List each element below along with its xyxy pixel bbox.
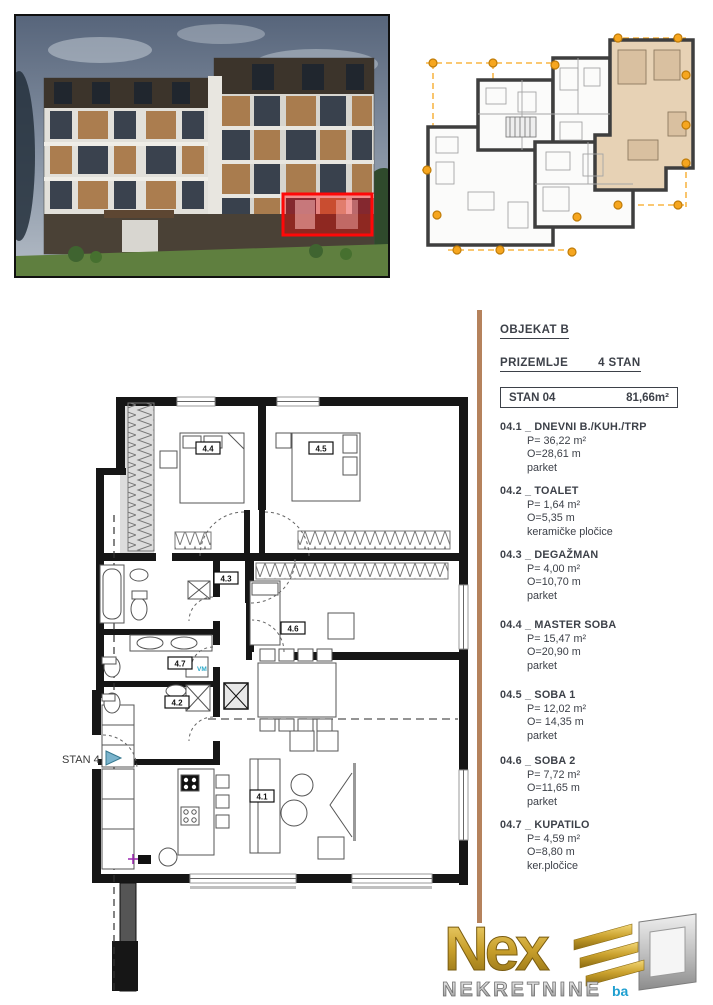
room-spec-item: 04.1 _ DNEVNI B./KUH./TRP P= 36,22 m² O=… (500, 421, 700, 475)
room-label-4.3: 4.3 (214, 572, 238, 584)
room-perimeter: O=20,90 m (527, 646, 700, 660)
site-plan-drawing (418, 22, 710, 264)
room-title: 04.4 _ MASTER SOBA (500, 619, 700, 633)
room-title: 04.2 _ TOALET (500, 485, 700, 499)
apartment-highlight-box (283, 194, 372, 235)
entrance-door (122, 220, 158, 252)
agency-logo: Nex NEKRETNINE ba (434, 912, 713, 1000)
room-title: 04.3 _ DEGAŽMAN (500, 549, 700, 563)
room-title: 04.1 _ DNEVNI B./KUH./TRP (500, 421, 700, 435)
room-area: P= 12,02 m² (527, 703, 700, 717)
floor-units-count: 4 STAN (598, 357, 640, 369)
svg-text:4.1: 4.1 (256, 793, 268, 802)
svg-text:4.6: 4.6 (287, 625, 299, 634)
room-label-4.2: 4.2 (165, 696, 189, 708)
room-floor-finish: parket (527, 660, 700, 674)
room-perimeter: O=10,70 m (527, 576, 700, 590)
cloud (48, 37, 152, 63)
bush (68, 246, 84, 262)
room-floor-finish: ker.pločice (527, 860, 700, 874)
unit-details-panel: OBJEKAT B PRIZEMLJE 4 STAN STAN 04 81,66… (500, 320, 700, 883)
shaft-box (224, 683, 248, 709)
unit-name-label: STAN 4 (62, 754, 100, 766)
logo-brand-text: Nex (444, 915, 550, 984)
room-floor-finish: parket (527, 590, 700, 604)
room-label-4.6: 4.6 (281, 622, 305, 634)
svg-text:4.2: 4.2 (171, 699, 183, 708)
room-perimeter: O=28,61 m (527, 448, 700, 462)
room-floor-finish: parket (527, 730, 700, 744)
floor-plan-drawing: VM 4.4 4.5 4.3 4.6 4.7 4.2 4.1 STAN 4 (40, 385, 470, 1000)
svg-text:4.4: 4.4 (202, 445, 214, 454)
room-floor-finish: parket (527, 796, 700, 810)
room-label-4.4: 4.4 (196, 442, 220, 454)
room-perimeter: O=8,80 m (527, 846, 700, 860)
entrance-canopy (104, 210, 174, 218)
svg-text:4.3: 4.3 (220, 575, 232, 584)
unit-summary-box: STAN 04 81,66m² (500, 387, 678, 408)
washing-machine-label: VM (197, 666, 207, 673)
room-spec-item: 04.2 _ TOALET P= 1,64 m² O=5,35 m kerami… (500, 485, 700, 539)
room-spec-item: 04.3 _ DEGAŽMAN P= 4,00 m² O=10,70 m par… (500, 549, 700, 603)
room-label-4.1: 4.1 (250, 790, 274, 802)
room-title: 04.6 _ SOBA 2 (500, 755, 700, 769)
room-area: P= 4,00 m² (527, 563, 700, 577)
room-title: 04.7 _ KUPATILO (500, 819, 700, 833)
room-spec-item: 04.5 _ SOBA 1 P= 12,02 m² O= 14,35 m par… (500, 689, 700, 743)
room-perimeter: O= 14,35 m (527, 716, 700, 730)
room-perimeter: O=11,65 m (527, 782, 700, 796)
room-spec-item: 04.4 _ MASTER SOBA P= 15,47 m² O=20,90 m… (500, 619, 700, 673)
floor-row: PRIZEMLJE 4 STAN (500, 357, 641, 372)
svg-text:4.5: 4.5 (315, 445, 327, 454)
room-label-4.7: 4.7 (168, 657, 192, 669)
logo-domain-text: ba (612, 983, 629, 999)
bush (90, 251, 102, 263)
listing-sheet: { "details_panel": { "building_title": "… (0, 0, 713, 1000)
room-spec-item: 04.7 _ KUPATILO P= 4,59 m² O=8,80 m ker.… (500, 819, 700, 873)
bush (340, 248, 352, 260)
unit-number: STAN 04 (509, 392, 555, 404)
room-area: P= 36,22 m² (527, 435, 700, 449)
building-title: OBJEKAT B (500, 324, 569, 339)
apartment-floor-plan: VM 4.4 4.5 4.3 4.6 4.7 4.2 4.1 STAN 4 (40, 385, 470, 1000)
site-plan (418, 22, 710, 264)
room-area: P= 7,72 m² (527, 769, 700, 783)
room-floor-finish: keramičke pločice (527, 526, 700, 540)
vertical-divider (477, 310, 482, 923)
unit-total-area: 81,66m² (626, 392, 669, 404)
building-render-image (16, 16, 388, 276)
room-perimeter: O=5,35 m (527, 512, 700, 526)
cloud (177, 24, 265, 44)
floor-label: PRIZEMLJE (500, 357, 568, 369)
room-spec-item: 04.6 _ SOBA 2 P= 7,72 m² O=11,65 m parke… (500, 755, 700, 809)
stair-hatch (506, 117, 536, 137)
bush (309, 244, 323, 258)
room-area: P= 15,47 m² (527, 633, 700, 647)
wall-cap (112, 941, 138, 991)
room-area: P= 4,59 m² (527, 833, 700, 847)
room-floor-finish: parket (527, 462, 700, 476)
logo-subtitle-text: NEKRETNINE (442, 979, 602, 1000)
building-render (14, 14, 390, 278)
room-area: P= 1,64 m² (527, 499, 700, 513)
agency-logo-graphic: Nex NEKRETNINE ba (434, 912, 713, 1000)
room-title: 04.5 _ SOBA 1 (500, 689, 700, 703)
svg-text:4.7: 4.7 (174, 660, 186, 669)
room-label-4.5: 4.5 (309, 442, 333, 454)
